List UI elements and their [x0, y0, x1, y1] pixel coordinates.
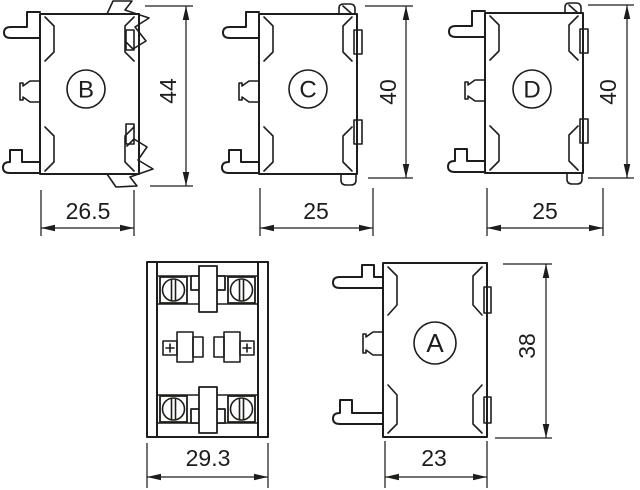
middle-latch: [239, 81, 259, 102]
arrowhead-right: [254, 474, 268, 481]
center-tab: [199, 266, 217, 312]
corner-facet: [569, 126, 578, 170]
part-label: D: [523, 76, 540, 103]
arrowhead-up: [183, 6, 190, 20]
arrowhead-left: [260, 225, 274, 232]
mounting-clip-bottom: [448, 149, 485, 172]
view-d: D 40 25: [448, 3, 634, 236]
corner-facet: [490, 16, 499, 60]
dimension-value: 40: [595, 79, 621, 105]
width-dimension: 25: [487, 188, 603, 236]
view-c: C 40 25: [222, 4, 413, 236]
dimension-value: 29.3: [186, 445, 231, 471]
arrowhead-up: [543, 264, 550, 278]
mounting-clip-bottom: [3, 150, 40, 173]
arrowhead-left: [487, 225, 501, 232]
mounting-clip-bottom: [222, 150, 259, 173]
middle-latch: [20, 81, 40, 102]
dimension-drawing-page: B 44 26.5 C: [0, 0, 640, 490]
arrowhead-left: [385, 474, 399, 481]
cross-screw-icon: [166, 344, 174, 352]
contact-inner: [193, 337, 203, 357]
screw-housing: [228, 277, 255, 303]
cross-screw-icon: [243, 344, 251, 352]
mounting-clip-top: [4, 12, 40, 38]
corner-facet: [569, 16, 578, 60]
arrowhead-down: [624, 164, 631, 178]
height-dimension: 44: [145, 6, 193, 186]
view-a: A 38 23: [333, 263, 552, 488]
contact-block: [177, 332, 193, 362]
dimension-value: 25: [303, 198, 329, 224]
dimension-value: 23: [421, 445, 447, 471]
corner-tab-diagonal: [343, 6, 352, 14]
corner-facet: [264, 17, 273, 61]
height-dimension: 40: [588, 5, 634, 178]
width-dimension: 25: [260, 188, 373, 236]
middle-latch: [363, 332, 383, 355]
corner-facet: [388, 385, 397, 433]
arrowhead-down: [403, 164, 410, 178]
screw-housing: [160, 277, 187, 303]
arrowhead-right: [120, 225, 134, 232]
part-label: C: [299, 76, 316, 103]
mounting-clip-top: [449, 11, 485, 37]
corner-facet: [490, 126, 499, 170]
corner-facet: [343, 127, 352, 171]
corner-tab-bottom: [341, 174, 356, 185]
arrowhead-right: [359, 225, 373, 232]
corner-facet: [264, 127, 273, 171]
center-tab: [199, 387, 217, 433]
corner-facet: [473, 267, 482, 315]
corner-facet: [45, 127, 54, 171]
view-top: 29.3: [147, 262, 268, 488]
middle-latch: [465, 80, 485, 101]
corner-tab-diagonal: [569, 5, 578, 13]
part-label: A: [426, 328, 444, 358]
arrowhead-right: [473, 474, 487, 481]
corner-facet: [388, 267, 397, 315]
contact-inner: [214, 337, 224, 357]
arrowhead-down: [183, 172, 190, 186]
height-dimension: 40: [365, 6, 413, 178]
view-b: B 44 26.5: [3, 1, 193, 236]
corner-facet: [343, 17, 352, 61]
mounting-clip-top: [223, 12, 259, 38]
arrowhead-right: [589, 225, 603, 232]
contact-block-dimension-drawing: B 44 26.5 C: [0, 0, 640, 490]
arrowhead-left: [147, 474, 161, 481]
screw-housing: [160, 396, 187, 422]
height-dimension: 38: [495, 264, 552, 438]
dimension-value: 25: [532, 198, 558, 224]
part-label: B: [78, 76, 94, 103]
corner-facet: [45, 17, 54, 61]
mounting-clip-bottom: [333, 400, 383, 424]
arrowhead-down: [543, 424, 550, 438]
width-dimension: 26.5: [41, 190, 134, 236]
screw-housing: [228, 396, 255, 422]
mounting-clip-top: [333, 265, 383, 288]
arrowhead-up: [624, 5, 631, 19]
dimension-value: 26.5: [66, 198, 111, 224]
dimension-value: 44: [155, 78, 181, 104]
arrowhead-up: [403, 6, 410, 20]
snap-latch-top: [107, 1, 149, 49]
snap-latch-bottom: [107, 139, 153, 187]
dimension-value: 38: [514, 333, 540, 359]
width-dimension: 29.3: [147, 443, 268, 488]
arrowhead-left: [41, 225, 55, 232]
contact-block: [224, 332, 240, 362]
corner-facet: [473, 385, 482, 433]
corner-tab-bottom: [567, 173, 582, 184]
width-dimension: 23: [385, 441, 487, 488]
dimension-value: 40: [375, 79, 401, 105]
